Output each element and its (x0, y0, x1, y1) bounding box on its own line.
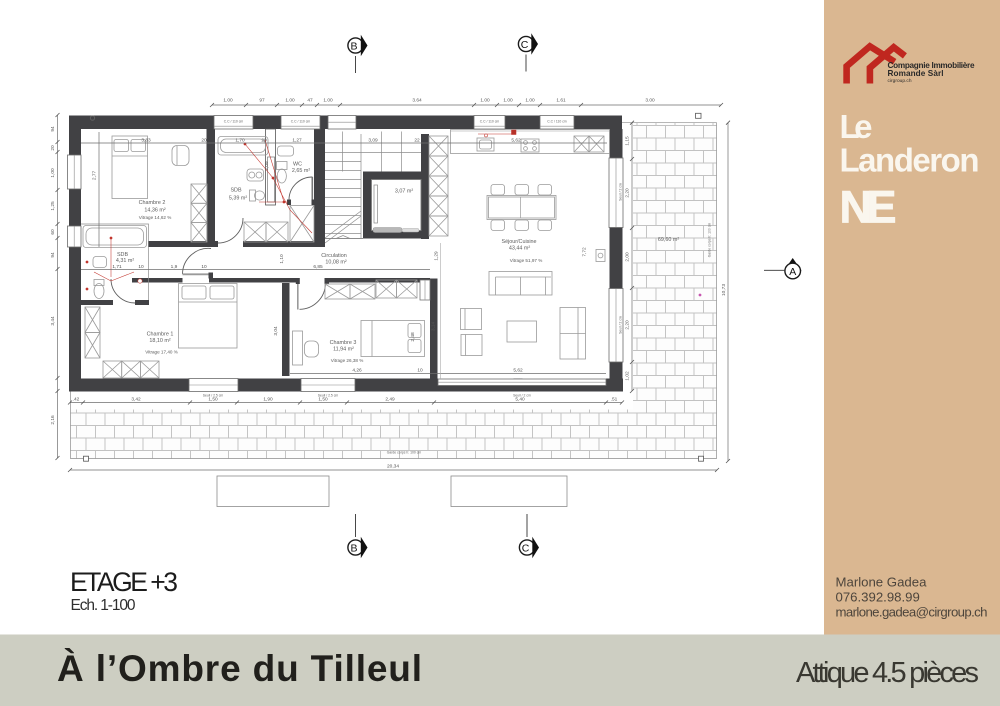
svg-text:6,85: 6,85 (313, 264, 323, 270)
svg-text:C: C (522, 542, 530, 554)
svg-text:NE: NE (840, 182, 897, 233)
svg-text:1.00: 1.00 (480, 98, 490, 104)
svg-text:4,26: 4,26 (352, 368, 362, 374)
svg-text:20,34: 20,34 (387, 464, 399, 470)
svg-text:1,70: 1,70 (235, 138, 245, 144)
svg-text:Garde corps h: 100 cm: Garde corps h: 100 cm (708, 223, 712, 258)
svg-text:cirgroup.ch: cirgroup.ch (888, 78, 912, 84)
svg-text:Chambre 3: Chambre 3 (330, 340, 357, 346)
svg-text:Vitrage 17,40 %: Vitrage 17,40 % (145, 350, 178, 355)
svg-text:20: 20 (261, 138, 267, 144)
svg-text:Landeron: Landeron (840, 142, 980, 179)
svg-text:2,77: 2,77 (92, 171, 98, 181)
svg-text:Seuil / 2 cm: Seuil / 2 cm (513, 394, 531, 398)
svg-text:Marlone Gadea: Marlone Gadea (836, 575, 928, 590)
svg-text:Chambre 1: Chambre 1 (147, 332, 174, 338)
svg-text:Seuil / 2 cm: Seuil / 2 cm (619, 316, 623, 334)
svg-text:10: 10 (201, 264, 207, 270)
svg-text:À l’Ombre du Tilleul: À l’Ombre du Tilleul (57, 648, 422, 689)
svg-text:60: 60 (50, 229, 56, 235)
svg-text:3,14: 3,14 (431, 322, 437, 332)
svg-text:1.00: 1.00 (223, 98, 233, 104)
svg-text:Romande Sàrl: Romande Sàrl (888, 69, 944, 78)
svg-text:94: 94 (50, 252, 56, 258)
svg-text:C.C / 110 cm: C.C / 110 cm (224, 119, 244, 123)
svg-text:3,09: 3,09 (368, 138, 378, 144)
svg-text:C.C / 110 cm: C.C / 110 cm (547, 119, 567, 123)
svg-text:10,08 m²: 10,08 m² (325, 260, 346, 266)
svg-text:7,72: 7,72 (582, 247, 588, 257)
svg-text:ETAGE +3: ETAGE +3 (70, 567, 178, 597)
svg-text:B: B (350, 40, 357, 52)
svg-text:2,20: 2,20 (625, 188, 631, 198)
svg-text:47: 47 (307, 98, 313, 104)
svg-text:10: 10 (138, 264, 144, 270)
svg-text:1.00: 1.00 (503, 98, 513, 104)
svg-text:Ech. 1-100: Ech. 1-100 (71, 597, 136, 614)
svg-text:2,09: 2,09 (264, 161, 270, 171)
svg-text:3,07 m²: 3,07 m² (395, 189, 413, 195)
svg-text:Le: Le (840, 108, 873, 145)
svg-text:1,25: 1,25 (50, 201, 56, 211)
svg-text:1.61: 1.61 (556, 98, 566, 104)
svg-text:5,62: 5,62 (511, 138, 521, 144)
svg-text:.42: .42 (73, 397, 80, 403)
svg-text:1,00: 1,00 (50, 168, 56, 178)
svg-text:Seuil / 2.5 cm: Seuil / 2.5 cm (203, 394, 224, 398)
svg-text:3,83: 3,83 (141, 138, 151, 144)
svg-text:10,73: 10,73 (721, 284, 727, 296)
svg-text:3.64: 3.64 (412, 98, 422, 104)
svg-text:20: 20 (50, 145, 56, 151)
svg-text:2,49: 2,49 (385, 397, 395, 403)
svg-text:2,00: 2,00 (625, 252, 631, 262)
svg-text:1.00: 1.00 (525, 98, 535, 104)
svg-text:1.00: 1.00 (323, 98, 333, 104)
svg-text:3.00: 3.00 (645, 98, 655, 104)
svg-text:10: 10 (417, 368, 423, 374)
svg-text:14,36 m²: 14,36 m² (144, 208, 165, 214)
svg-text:Vitrage 14,62 %: Vitrage 14,62 % (139, 215, 172, 220)
svg-text:3,44: 3,44 (50, 316, 56, 326)
svg-text:076.392.98.99: 076.392.98.99 (836, 590, 920, 605)
svg-text:marlone.gadea@cirgroup.ch: marlone.gadea@cirgroup.ch (836, 605, 988, 620)
svg-text:1,9: 1,9 (171, 264, 178, 270)
svg-text:1,10: 1,10 (279, 254, 285, 264)
svg-text:B: B (350, 542, 357, 554)
svg-text:20: 20 (201, 138, 207, 144)
svg-text:SDB: SDB (230, 188, 241, 194)
svg-text:Vitrage 26,38 %: Vitrage 26,38 % (331, 358, 364, 363)
svg-text:18,10 m²: 18,10 m² (149, 338, 170, 344)
svg-text:2,20: 2,20 (625, 320, 631, 330)
svg-text:A: A (789, 266, 796, 278)
svg-text:Circulation: Circulation (321, 253, 346, 259)
svg-text:2,65 m²: 2,65 m² (292, 168, 310, 174)
svg-text:2,48: 2,48 (410, 332, 416, 342)
svg-text:1,02: 1,02 (625, 371, 631, 381)
svg-text:C.C / 110 cm: C.C / 110 cm (291, 119, 311, 123)
svg-text:Attique 4.5 pièces: Attique 4.5 pièces (796, 657, 979, 689)
svg-text:.51: .51 (611, 397, 618, 403)
svg-text:3,04: 3,04 (273, 326, 279, 336)
svg-text:43,44 m²: 43,44 m² (509, 246, 530, 252)
svg-text:1,71: 1,71 (112, 264, 122, 270)
svg-text:Garde corps h: 100 cm: Garde corps h: 100 cm (387, 451, 422, 455)
svg-text:Seuil / 2 cm: Seuil / 2 cm (619, 183, 623, 201)
svg-text:Vitrage 51,97 %: Vitrage 51,97 % (510, 258, 543, 263)
svg-text:C: C (521, 39, 529, 51)
svg-text:1,29: 1,29 (434, 251, 440, 261)
svg-text:94: 94 (50, 126, 56, 132)
svg-text:2,16: 2,16 (50, 415, 56, 425)
svg-text:WC: WC (293, 162, 302, 168)
svg-text:22: 22 (414, 138, 420, 144)
svg-text:4,31 m²: 4,31 m² (116, 258, 134, 264)
svg-text:1.00: 1.00 (285, 98, 295, 104)
svg-text:5,62: 5,62 (513, 368, 523, 374)
svg-text:1,27: 1,27 (292, 138, 302, 144)
svg-text:3,42: 3,42 (131, 397, 141, 403)
svg-text:97: 97 (259, 98, 265, 104)
svg-text:5,39 m²: 5,39 m² (229, 196, 247, 202)
svg-text:69,60 m²: 69,60 m² (658, 237, 679, 243)
svg-text:1,90: 1,90 (263, 397, 273, 403)
svg-text:1,15: 1,15 (625, 136, 631, 146)
svg-text:Chambre 2: Chambre 2 (139, 200, 166, 206)
svg-text:Séjour/Cuisine: Séjour/Cuisine (501, 239, 536, 245)
svg-text:11,94 m²: 11,94 m² (333, 347, 354, 353)
svg-text:Seuil / 2.5 cm: Seuil / 2.5 cm (318, 394, 339, 398)
svg-text:C.C / 110 cm: C.C / 110 cm (480, 119, 500, 123)
